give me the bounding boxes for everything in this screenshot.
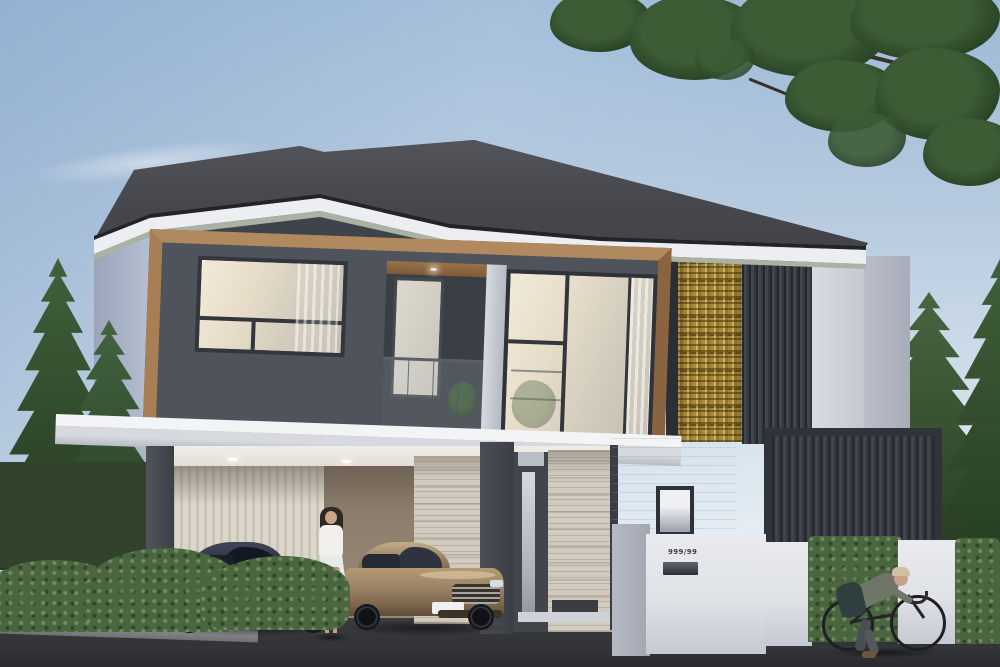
cyclist-cap [892, 567, 910, 576]
house-number: 999/99 [668, 548, 697, 556]
railing-post [406, 361, 410, 435]
right-side-face [864, 256, 910, 428]
window-mullion [251, 318, 256, 350]
car-wheel [354, 604, 380, 630]
balcony-light [431, 268, 437, 270]
leaf-cluster [828, 112, 906, 167]
fence-wall [764, 542, 812, 646]
window-mullion [560, 275, 570, 433]
entry-step [518, 612, 618, 622]
cyclist-shoe [862, 651, 876, 658]
railing-reflection [511, 369, 563, 373]
balcony-recess [381, 261, 487, 435]
fence-return-pier [612, 524, 650, 656]
bronze-car [340, 538, 510, 636]
gate-box [764, 428, 942, 550]
leaf-cluster [695, 38, 755, 80]
vertical-slat-panel [742, 248, 814, 444]
architectural-render-scene: 999/99 [0, 0, 1000, 667]
curtain-reflection [295, 263, 340, 352]
woman-shadow [312, 633, 350, 642]
railing-post [431, 361, 435, 435]
ceiling-light [342, 460, 351, 463]
hood-highlight [420, 571, 496, 579]
right-front-pier [812, 252, 866, 430]
gate-ribbed-panel [772, 436, 934, 542]
leaf-cluster [923, 118, 1000, 186]
fence-hedge [955, 538, 1000, 644]
entry-door [514, 452, 548, 632]
car-grille-chrome [452, 584, 500, 604]
woman-blouse [319, 525, 343, 559]
upper-window-right [501, 269, 658, 440]
door-glass [522, 472, 535, 622]
cyclist [810, 533, 950, 661]
car-side-window [362, 554, 400, 568]
mail-slot [663, 562, 698, 575]
car-wheel [468, 604, 494, 630]
foliage-reflection [511, 379, 557, 429]
woman-face [325, 511, 337, 524]
car-headlight [490, 580, 503, 587]
railing-post [456, 362, 460, 436]
door-transom [518, 452, 544, 466]
house-number-wall: 999/99 [646, 534, 766, 654]
window-mullion [508, 339, 566, 345]
ceiling-light [228, 458, 237, 461]
ground-window [656, 486, 694, 536]
tree-canopy [545, 0, 1000, 205]
upper-window-left [195, 256, 348, 357]
gold-pattern-screen [678, 250, 742, 442]
curtain-reflection [626, 278, 654, 437]
